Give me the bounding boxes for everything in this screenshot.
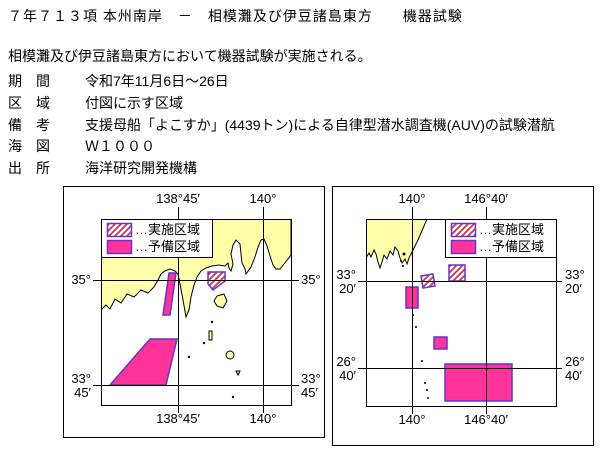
lat-label-left-2a: 33°: [71, 371, 91, 386]
lat-label-left-1a: 33°: [336, 267, 356, 282]
field-value-area: 付図に示す区域: [85, 93, 183, 113]
island-miyakejima: [226, 351, 234, 359]
islet-dot: [427, 397, 429, 399]
notice-title: ７年７１３項 本州南岸 － 相模灘及び伊豆諸島東方 機器試験: [8, 6, 463, 26]
field-value-chart: Ｗ１０００: [85, 136, 155, 156]
field-label-source: 出 所: [8, 158, 50, 178]
field-label-period: 期 間: [8, 71, 50, 91]
legend-solid-swatch: [108, 241, 132, 254]
notice-summary: 相模灘及び伊豆諸島東方において機器試験が実施される。: [8, 46, 372, 66]
right-map: …実施区域 …予備区域 140° 146°40′ 33° 20′ 26° 40′…: [332, 186, 595, 447]
islet-dot: [415, 326, 417, 328]
islet-dot: [421, 360, 423, 362]
lat-label-right-1b: 20′: [565, 281, 582, 296]
legend-hatched-label: …実施区域: [479, 222, 544, 237]
legend-hatched-label: …実施区域: [135, 222, 200, 237]
field-value-source: 海洋研究開発機構: [85, 158, 197, 178]
lon-label-top-2: 146°40′: [464, 191, 508, 206]
lat-label-right-2b: 45′: [301, 385, 318, 400]
legend-hatched-swatch: [108, 224, 132, 237]
lon-label-top-2: 140°: [250, 191, 277, 206]
lat-label-left-1b: 20′: [339, 281, 356, 296]
islet-dot: [402, 265, 404, 267]
field-value-remarks: 支援母船「よこすか」(4439トン)による自律型潜水調査機(AUV)の試験潜航: [85, 115, 555, 135]
lat-label-left-2a: 26°: [336, 354, 356, 369]
field-label-remarks: 備 考: [8, 115, 50, 135]
legend-solid-swatch: [452, 241, 476, 254]
lat-label-right-2a: 33°: [301, 371, 321, 386]
islet-dot: [426, 389, 428, 391]
legend-box: …実施区域 …予備区域: [446, 220, 557, 258]
lat-label-left-1: 35°: [71, 272, 91, 287]
reserve-area-mid: [434, 337, 447, 349]
field-label-chart: 海 図: [8, 136, 50, 156]
lon-label-bottom-2: 146°40′: [464, 412, 508, 427]
lat-label-right-1: 35°: [301, 272, 321, 287]
islet-dot: [188, 356, 190, 358]
field-value-period: 令和7年11月6日～26日: [85, 71, 229, 91]
field-row-source: 出 所 海洋研究開発機構: [0, 158, 8, 206]
lat-label-left-2b: 45′: [74, 385, 91, 400]
reserve-area-south: [445, 364, 512, 401]
lat-label-right-1a: 33°: [565, 267, 585, 282]
lon-label-bottom-2: 140°: [250, 411, 277, 426]
islet-dot: [203, 342, 205, 344]
island-niijima: [209, 331, 212, 340]
lat-label-right-2a: 26°: [565, 354, 585, 369]
notice-page: { "document": { "title": "７年７１３項 本州南岸 － …: [0, 0, 609, 456]
legend-solid-label: …予備区域: [135, 239, 200, 254]
legend-solid-label: …予備区域: [479, 239, 544, 254]
islet-dot: [232, 396, 234, 398]
lat-label-right-2b: 40′: [565, 368, 582, 383]
lon-label-bottom-1: 140°: [399, 412, 426, 427]
field-label-area: 区 域: [8, 93, 50, 113]
islet-dot: [424, 382, 426, 384]
lon-label-bottom-1: 138°45′: [156, 411, 200, 426]
lon-label-top-1: 138°45′: [156, 191, 200, 206]
legend-box: …実施区域 …予備区域: [102, 220, 213, 258]
legend-hatched-swatch: [452, 224, 476, 237]
lat-label-left-2b: 40′: [339, 368, 356, 383]
islet-dot: [211, 321, 213, 323]
islet-dot: [403, 253, 406, 256]
islet-dot: [400, 260, 402, 262]
left-map: …実施区域 …予備区域 138°45′ 140° 35° 33° 45′ 35°…: [63, 186, 326, 439]
implementation-area-east: [449, 265, 465, 281]
lon-label-top-1: 140°: [399, 191, 426, 206]
